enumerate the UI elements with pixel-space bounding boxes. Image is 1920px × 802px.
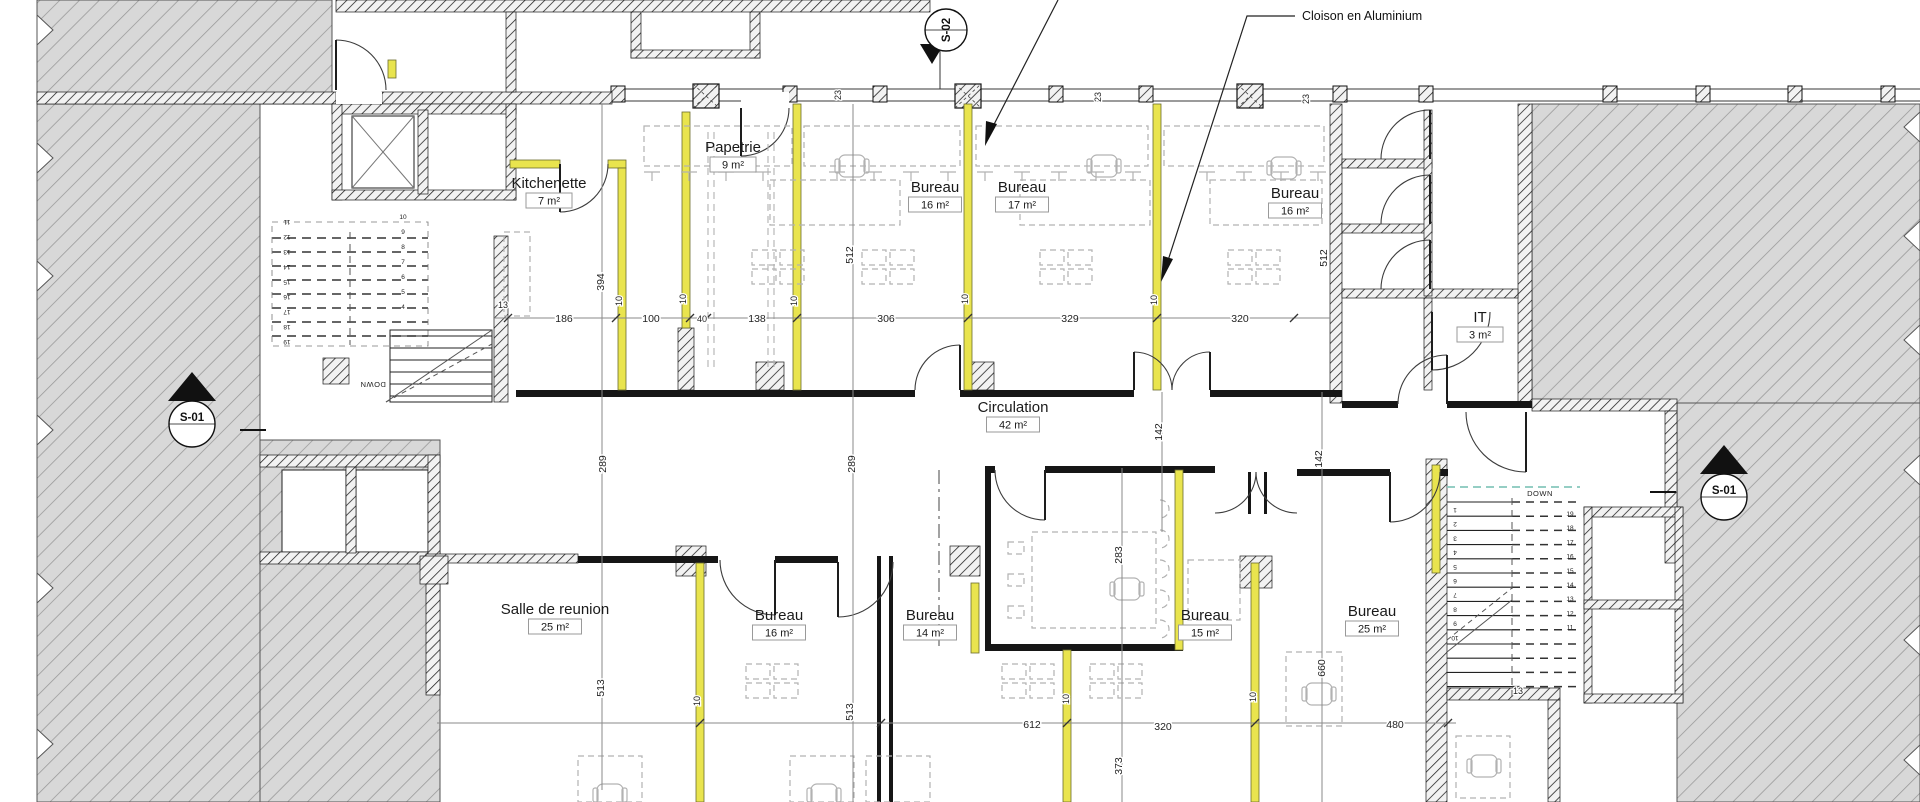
room-label: Bureau25 m² bbox=[1346, 603, 1399, 636]
stair-number: 12 bbox=[1566, 610, 1574, 617]
interior-walls-hatched-part bbox=[756, 362, 784, 390]
interior-walls-black-part bbox=[1342, 401, 1398, 408]
dimension-text: 612 bbox=[1023, 719, 1041, 731]
dimension-text: 142 bbox=[1313, 450, 1325, 468]
interior-walls-black-part bbox=[775, 556, 838, 563]
interior-walls-black-part bbox=[1297, 469, 1390, 476]
yellow-partitions-part bbox=[964, 104, 972, 390]
interior-walls-hatched-part bbox=[678, 328, 694, 390]
room-label: Bureau16 m² bbox=[1269, 185, 1322, 218]
stair-number: 13 bbox=[283, 248, 291, 255]
dimension-text: 40 bbox=[697, 314, 707, 324]
hatched-masses-part bbox=[356, 470, 428, 552]
stair-number: 12 bbox=[283, 233, 291, 240]
interior-walls-hatched-part bbox=[506, 12, 516, 92]
dimension-text: 13 bbox=[1513, 686, 1523, 696]
stair-number: 16 bbox=[283, 293, 291, 300]
dimension-text: 10 bbox=[1248, 692, 1258, 702]
room-name: Salle de reunion bbox=[501, 601, 609, 618]
dimension-text: 660 bbox=[1316, 659, 1328, 677]
stair-number: 15 bbox=[1566, 568, 1574, 575]
dimension-text: 10 bbox=[789, 296, 799, 306]
stair-number: 18 bbox=[283, 323, 291, 330]
dimension-text: 10 bbox=[678, 294, 688, 304]
room-area: 9 m² bbox=[722, 160, 744, 172]
stair-number: 17 bbox=[1566, 539, 1574, 546]
dimension-text: 394 bbox=[595, 273, 607, 291]
doors-part bbox=[336, 92, 382, 104]
interior-walls-hatched-part bbox=[1330, 104, 1342, 403]
stair-number: 6 bbox=[401, 274, 405, 281]
room-area: 25 m² bbox=[1358, 624, 1386, 636]
dimension-text: 10 bbox=[1149, 295, 1159, 305]
interior-walls-black-part bbox=[889, 556, 893, 802]
yellow-partitions-part bbox=[971, 583, 979, 653]
stair-number: 5 bbox=[401, 289, 405, 296]
stair-number: 10 bbox=[1451, 634, 1459, 641]
hatched-masses-part bbox=[37, 0, 332, 104]
dimension-text: 13 bbox=[498, 300, 508, 310]
room-area: 7 m² bbox=[538, 196, 560, 208]
room-label: Bureau16 m² bbox=[909, 179, 962, 212]
dimension-text: 186 bbox=[555, 313, 573, 325]
dimension-text: 512 bbox=[844, 246, 856, 264]
interior-walls-black-part bbox=[1264, 472, 1267, 514]
interior-walls-black-part bbox=[1440, 469, 1448, 476]
interior-walls-black-part bbox=[985, 644, 1183, 651]
column bbox=[611, 86, 625, 102]
dimension-text: 289 bbox=[597, 455, 609, 473]
stair-number: 7 bbox=[401, 259, 405, 266]
interior-walls-hatched-part bbox=[1342, 224, 1432, 233]
dimension-text: 23 bbox=[1301, 94, 1311, 104]
interior-walls-hatched-part bbox=[1548, 700, 1560, 802]
interior-walls-hatched-part bbox=[336, 0, 930, 12]
stair-number: 4 bbox=[1453, 549, 1457, 556]
room-name: Bureau bbox=[1271, 185, 1319, 202]
yellow-partitions-part bbox=[1251, 563, 1259, 802]
section-marker-s01-right-label: S-01 bbox=[1712, 485, 1737, 497]
room-area: 16 m² bbox=[765, 628, 793, 640]
column bbox=[1881, 86, 1895, 102]
dimension-text: 283 bbox=[1113, 546, 1125, 564]
hatched-masses-part bbox=[37, 104, 260, 802]
stair-number: 2 bbox=[1453, 520, 1457, 527]
yellow-partitions-part bbox=[1153, 104, 1161, 390]
interior-walls-black-part bbox=[1045, 466, 1215, 473]
interior-walls-hatched-part bbox=[346, 467, 356, 553]
stair-number: 14 bbox=[283, 263, 291, 270]
stair-number: 11 bbox=[283, 218, 290, 225]
stair-number: 17 bbox=[283, 308, 291, 315]
interior-walls-hatched-part bbox=[420, 556, 448, 584]
interior-walls-hatched-part bbox=[1342, 159, 1432, 168]
stair-number: 8 bbox=[1453, 605, 1457, 612]
room-area: 14 m² bbox=[916, 628, 944, 640]
interior-walls-hatched-part bbox=[37, 92, 336, 104]
stair-number: 18 bbox=[1566, 525, 1574, 532]
dimension-text: 289 bbox=[846, 455, 858, 473]
room-area: 16 m² bbox=[1281, 206, 1309, 218]
room-name: Bureau bbox=[1181, 607, 1229, 624]
annotation-text: Cloison en Aluminium bbox=[1302, 9, 1422, 23]
interior-walls-hatched-part bbox=[418, 110, 428, 194]
room-area: 16 m² bbox=[921, 200, 949, 212]
interior-walls-hatched-part bbox=[1518, 104, 1532, 403]
yellow-partitions-part bbox=[618, 168, 626, 390]
interior-walls-black-part bbox=[578, 556, 718, 563]
stairs-right-down-label: DOWN bbox=[1527, 489, 1553, 498]
room-name: Bureau bbox=[1348, 603, 1396, 620]
stair-number: 15 bbox=[283, 278, 291, 285]
dimension-text: 23 bbox=[833, 90, 843, 100]
column bbox=[1139, 86, 1153, 102]
dimension-text: 23 bbox=[1093, 92, 1103, 102]
stair-number: 7 bbox=[1453, 591, 1457, 598]
interior-walls-hatched-part bbox=[332, 104, 342, 200]
interior-walls-hatched-part bbox=[1584, 507, 1683, 517]
room-area: 25 m² bbox=[541, 622, 569, 634]
stair-number: 11 bbox=[1567, 625, 1574, 632]
interior-walls-hatched-part bbox=[950, 546, 980, 576]
dimension-text: 329 bbox=[1061, 313, 1079, 325]
room-name: Bureau bbox=[998, 179, 1046, 196]
hatched-masses-part bbox=[282, 470, 346, 552]
interior-walls-black-part bbox=[516, 390, 915, 397]
dimension-text: 10 bbox=[692, 696, 702, 706]
stair-number: 1 bbox=[1453, 506, 1457, 513]
interior-walls-hatched-part bbox=[426, 554, 578, 563]
column bbox=[1049, 86, 1063, 102]
interior-walls-hatched-part bbox=[1424, 298, 1432, 390]
stair-number: 19 bbox=[283, 338, 291, 345]
interior-walls-black-part bbox=[985, 466, 991, 650]
room-area: 15 m² bbox=[1191, 628, 1219, 640]
room-name: Bureau bbox=[906, 607, 954, 624]
stair-number: 6 bbox=[1453, 577, 1457, 584]
interior-walls-hatched-part bbox=[1584, 600, 1683, 609]
dimension-text: 513 bbox=[595, 679, 607, 697]
dimension-text: 100 bbox=[642, 313, 660, 325]
room-name: Circulation bbox=[978, 399, 1049, 416]
dimension-text: 142 bbox=[1153, 423, 1165, 441]
dimension-text: 10 bbox=[1061, 694, 1071, 704]
column bbox=[1333, 86, 1347, 102]
stair-number: 3 bbox=[1453, 534, 1457, 541]
dimension-text: 10 bbox=[614, 296, 624, 306]
interior-walls-black-part bbox=[1447, 401, 1532, 408]
doors-part bbox=[741, 92, 789, 104]
interior-walls-hatched-part bbox=[323, 358, 349, 384]
stair-number: 8 bbox=[401, 244, 405, 251]
room-area: 3 m² bbox=[1469, 330, 1491, 342]
yellow-partitions-part bbox=[793, 104, 801, 390]
room-area: 42 m² bbox=[999, 420, 1027, 432]
section-marker-s02-label: S-02 bbox=[941, 18, 953, 42]
room-label: Papetrie9 m² bbox=[705, 139, 761, 172]
interior-walls-hatched-part bbox=[428, 455, 440, 565]
dimension-text: 10 bbox=[960, 294, 970, 304]
yellow-partitions-part bbox=[696, 563, 704, 802]
room-label: Bureau17 m² bbox=[996, 179, 1049, 212]
dimension-text: 513 bbox=[844, 703, 856, 721]
yellow-partitions-part bbox=[510, 160, 560, 168]
stair-number: 16 bbox=[1566, 554, 1574, 561]
interior-walls-hatched-part bbox=[260, 552, 440, 564]
interior-walls-black-part bbox=[877, 556, 881, 802]
dimension-text: 306 bbox=[877, 313, 895, 325]
stair-number: 4 bbox=[401, 304, 405, 311]
interior-walls-hatched-part bbox=[1532, 399, 1677, 411]
interior-walls-hatched-part bbox=[494, 236, 508, 402]
room-area: 17 m² bbox=[1008, 200, 1036, 212]
room-name: Kitchenette bbox=[511, 175, 586, 192]
dimension-text: 373 bbox=[1113, 757, 1125, 775]
interior-walls-hatched-part bbox=[631, 50, 760, 58]
interior-walls-hatched-part bbox=[382, 92, 612, 104]
column bbox=[1419, 86, 1433, 102]
interior-walls-hatched-part bbox=[1584, 694, 1683, 703]
stairs-left-down-label: DOWN bbox=[360, 380, 386, 389]
dimension-text: 138 bbox=[748, 313, 766, 325]
room-label: Bureau14 m² bbox=[904, 607, 957, 640]
room-name: Bureau bbox=[755, 607, 803, 624]
dimension-text: 480 bbox=[1386, 719, 1404, 731]
stair-number: 5 bbox=[1453, 563, 1457, 570]
yellow-partitions-part bbox=[608, 160, 626, 168]
floor-plan: DOWN DOWN Cloison en Aluminium S-02 bbox=[0, 0, 1920, 802]
yellow-partitions-part bbox=[388, 60, 396, 78]
dimension-text: 320 bbox=[1231, 313, 1249, 325]
stair-number: 13 bbox=[1566, 596, 1574, 603]
room-name: IT bbox=[1473, 309, 1486, 326]
room-name: Bureau bbox=[911, 179, 959, 196]
section-marker-s01-left-label: S-01 bbox=[180, 412, 205, 424]
column bbox=[1696, 86, 1710, 102]
stair-number: 19 bbox=[1566, 511, 1574, 518]
stair-number: 10 bbox=[399, 214, 407, 221]
stair-number: 14 bbox=[1566, 582, 1574, 589]
interior-walls-hatched-part bbox=[260, 455, 440, 467]
room-label: Circulation42 m² bbox=[978, 399, 1049, 432]
dimension-text: 320 bbox=[1154, 721, 1172, 733]
stair-number: 9 bbox=[1453, 620, 1457, 627]
stair-number: 9 bbox=[401, 229, 405, 236]
room-label: Bureau16 m² bbox=[753, 607, 806, 640]
room-name: Papetrie bbox=[705, 139, 761, 156]
hatched-masses-part bbox=[1532, 104, 1920, 403]
column bbox=[1788, 86, 1802, 102]
column bbox=[1603, 86, 1617, 102]
interior-walls-hatched-part bbox=[1447, 688, 1560, 700]
interior-walls-black-part bbox=[960, 390, 1134, 397]
room-label: Bureau15 m² bbox=[1179, 607, 1232, 640]
column bbox=[873, 86, 887, 102]
dimension-text: 512 bbox=[1318, 249, 1330, 267]
